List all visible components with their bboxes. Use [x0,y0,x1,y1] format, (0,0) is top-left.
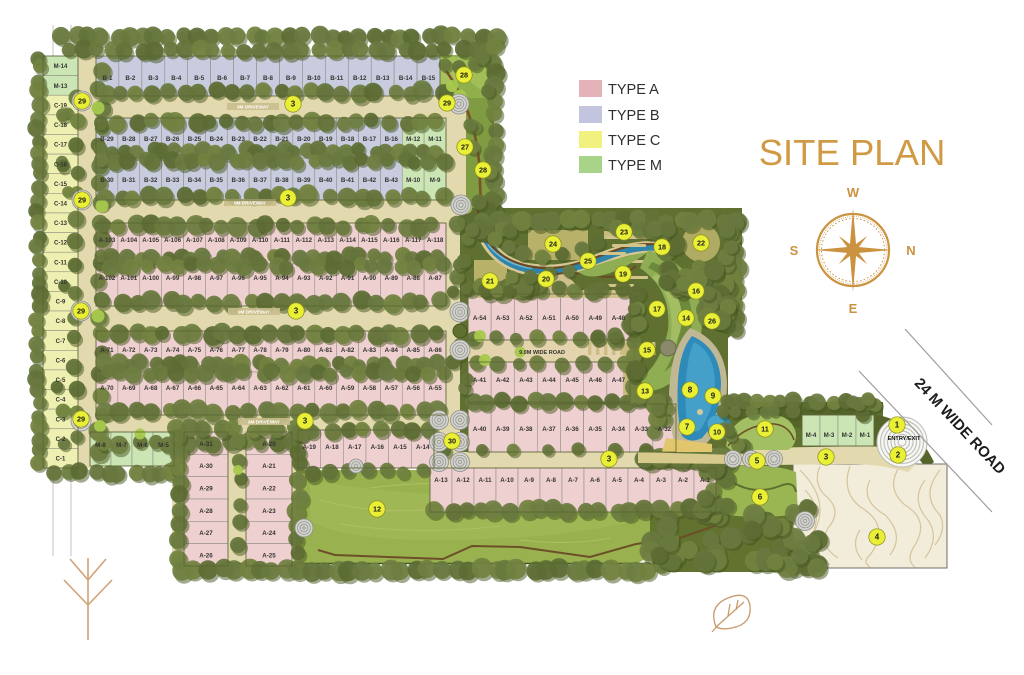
svg-text:A-60: A-60 [319,385,333,392]
svg-text:SITE PLAN: SITE PLAN [759,132,946,173]
svg-text:A-65: A-65 [210,385,224,392]
svg-text:A-52: A-52 [519,315,533,322]
svg-text:B-28: B-28 [122,136,136,143]
svg-text:A-89: A-89 [385,275,399,282]
svg-text:B-41: B-41 [341,177,355,184]
svg-text:A-33: A-33 [635,426,649,433]
svg-text:C-10: C-10 [54,280,68,286]
svg-text:A-47: A-47 [612,377,626,384]
svg-text:A-30: A-30 [199,463,213,470]
svg-text:9: 9 [711,392,716,401]
svg-text:A-118: A-118 [427,237,444,244]
svg-text:M-11: M-11 [428,136,442,143]
svg-text:A-35: A-35 [588,426,602,433]
svg-text:A-102: A-102 [98,275,115,282]
svg-text:A-43: A-43 [519,377,533,384]
svg-text:A-79: A-79 [275,347,289,354]
svg-text:C-1: C-1 [56,457,66,463]
svg-text:B-37: B-37 [253,177,267,184]
svg-text:B-5: B-5 [194,75,205,82]
svg-text:A-68: A-68 [144,385,158,392]
svg-text:A-74: A-74 [166,347,180,354]
svg-text:26: 26 [708,317,716,326]
svg-text:C-8: C-8 [56,319,66,325]
svg-text:A-24: A-24 [262,530,276,537]
svg-text:A-99: A-99 [166,275,180,282]
svg-text:B-26: B-26 [166,136,180,143]
svg-text:21: 21 [486,277,494,286]
svg-text:A-109: A-109 [230,237,247,244]
svg-text:C-12: C-12 [54,241,68,247]
svg-text:2: 2 [896,451,901,460]
svg-text:10: 10 [713,428,721,437]
svg-text:29: 29 [77,307,85,316]
svg-text:A-105: A-105 [142,237,159,244]
svg-text:M-10: M-10 [406,177,421,184]
svg-text:C-4: C-4 [56,398,66,404]
svg-text:B-40: B-40 [319,177,333,184]
svg-text:B-34: B-34 [188,177,202,184]
svg-text:A-110: A-110 [252,237,269,244]
svg-text:C-16: C-16 [54,162,68,168]
svg-text:5: 5 [755,457,760,466]
svg-text:A-50: A-50 [565,315,579,322]
svg-text:A-63: A-63 [253,385,267,392]
svg-text:A-54: A-54 [473,315,487,322]
svg-text:S: S [790,243,799,258]
svg-text:B-13: B-13 [376,75,390,82]
svg-text:3: 3 [291,100,296,109]
svg-text:A-46: A-46 [589,377,603,384]
svg-text:C-7: C-7 [56,339,66,345]
svg-text:30: 30 [448,437,456,446]
svg-text:18: 18 [658,243,666,252]
svg-text:C-19: C-19 [54,103,68,109]
svg-text:A-48: A-48 [612,315,626,322]
svg-text:7: 7 [685,423,690,432]
svg-text:A-17: A-17 [348,444,362,451]
svg-text:A-25: A-25 [262,553,276,560]
svg-text:A-71: A-71 [100,347,114,354]
svg-text:B-10: B-10 [307,75,321,82]
svg-text:A-78: A-78 [253,347,267,354]
svg-text:A-45: A-45 [565,377,579,384]
svg-text:B-19: B-19 [319,136,333,143]
svg-text:A-40: A-40 [473,426,487,433]
svg-text:TYPE M: TYPE M [608,158,662,174]
svg-text:A-37: A-37 [542,426,556,433]
svg-text:M-7: M-7 [116,442,127,449]
svg-text:27: 27 [461,143,469,152]
svg-text:A-84: A-84 [385,347,399,354]
svg-text:B-29: B-29 [100,136,114,143]
svg-text:A-111: A-111 [274,237,291,244]
svg-text:A-6: A-6 [590,477,601,484]
svg-text:ENTRY/EXIT: ENTRY/EXIT [888,436,921,442]
svg-text:B-33: B-33 [166,177,180,184]
svg-text:A-90: A-90 [363,275,377,282]
svg-text:B-1: B-1 [103,75,114,82]
svg-text:22: 22 [697,239,705,248]
svg-text:A-38: A-38 [519,426,533,433]
svg-text:B-11: B-11 [330,75,344,82]
svg-text:A-85: A-85 [406,347,420,354]
svg-text:A-56: A-56 [406,385,420,392]
svg-text:M-9: M-9 [430,177,441,184]
svg-text:B-43: B-43 [385,177,399,184]
svg-text:A-62: A-62 [275,385,289,392]
svg-text:B-22: B-22 [253,136,267,143]
svg-text:A-42: A-42 [496,377,510,384]
svg-text:12: 12 [373,505,381,514]
svg-text:A-13: A-13 [434,477,448,484]
svg-text:A-28: A-28 [199,508,213,515]
svg-text:B-30: B-30 [100,177,114,184]
svg-text:M-12: M-12 [406,136,421,143]
svg-text:A-15: A-15 [393,444,407,451]
svg-text:A-44: A-44 [542,377,556,384]
svg-text:TYPE A: TYPE A [608,82,659,98]
svg-text:A-18: A-18 [325,444,339,451]
svg-text:B-35: B-35 [210,177,224,184]
svg-text:A-92: A-92 [319,275,333,282]
svg-text:A-4: A-4 [634,477,645,484]
svg-text:M-14: M-14 [54,64,68,70]
svg-text:A-77: A-77 [231,347,245,354]
svg-text:M-6: M-6 [137,442,148,449]
svg-text:A-16: A-16 [371,444,385,451]
svg-text:A-57: A-57 [385,385,399,392]
svg-text:20: 20 [542,275,550,284]
svg-text:M-5: M-5 [158,442,169,449]
svg-text:A-116: A-116 [383,237,400,244]
svg-text:A-86: A-86 [428,347,442,354]
svg-text:C-14: C-14 [54,202,68,208]
svg-text:A-29: A-29 [199,486,213,493]
svg-text:B-39: B-39 [297,177,311,184]
svg-text:A-76: A-76 [210,347,224,354]
svg-text:B-36: B-36 [231,177,245,184]
svg-text:A-117: A-117 [405,237,422,244]
svg-text:C-11: C-11 [54,260,67,266]
svg-text:A-93: A-93 [297,275,311,282]
svg-text:A-80: A-80 [297,347,311,354]
svg-text:11: 11 [761,425,769,434]
svg-text:A-82: A-82 [341,347,355,354]
svg-text:29: 29 [78,97,86,106]
svg-text:C-5: C-5 [56,378,66,384]
svg-text:A-83: A-83 [363,347,377,354]
svg-text:B-15: B-15 [422,75,436,82]
svg-text:A-2: A-2 [678,477,689,484]
svg-text:B-7: B-7 [240,75,251,82]
svg-text:A-9: A-9 [524,477,535,484]
svg-text:3: 3 [607,455,612,464]
svg-text:28: 28 [479,166,487,175]
svg-text:A-108: A-108 [208,237,225,244]
svg-text:9M DRIVEWAY: 9M DRIVEWAY [238,310,270,315]
svg-text:C-6: C-6 [56,358,66,364]
svg-text:A-88: A-88 [406,275,420,282]
svg-text:6: 6 [758,493,763,502]
svg-text:A-3: A-3 [656,477,667,484]
svg-text:A-1: A-1 [700,477,711,484]
svg-text:A-5: A-5 [612,477,623,484]
svg-text:B-27: B-27 [144,136,158,143]
svg-text:M-3: M-3 [824,432,835,439]
svg-text:3: 3 [294,307,299,316]
svg-text:A-100: A-100 [142,275,159,282]
svg-text:C-9: C-9 [56,300,66,306]
svg-text:C-17: C-17 [54,143,68,149]
svg-text:A-101: A-101 [120,275,137,282]
svg-text:A-66: A-66 [188,385,202,392]
svg-text:B-20: B-20 [297,136,311,143]
svg-text:29: 29 [443,99,451,108]
svg-text:A-103: A-103 [98,237,115,244]
svg-text:3: 3 [286,194,291,203]
svg-text:B-14: B-14 [399,75,413,82]
svg-text:A-21: A-21 [262,463,276,470]
svg-text:9.0M WIDE ROAD: 9.0M WIDE ROAD [519,350,565,356]
svg-text:A-104: A-104 [120,237,137,244]
svg-text:A-12: A-12 [456,477,470,484]
svg-text:14: 14 [682,314,691,323]
svg-text:B-2: B-2 [125,75,136,82]
svg-text:B-24: B-24 [210,136,224,143]
svg-text:A-97: A-97 [210,275,224,282]
svg-text:TYPE C: TYPE C [608,133,660,149]
svg-text:A-73: A-73 [144,347,158,354]
svg-text:B-17: B-17 [363,136,377,143]
svg-text:A-19: A-19 [303,444,317,451]
svg-text:B-21: B-21 [275,136,289,143]
svg-text:TYPE B: TYPE B [608,108,660,124]
svg-text:M-1: M-1 [860,432,871,439]
svg-text:A-91: A-91 [341,275,355,282]
svg-text:B-6: B-6 [217,75,228,82]
svg-text:29: 29 [78,196,86,205]
svg-text:A-53: A-53 [496,315,510,322]
svg-text:B-8: B-8 [263,75,274,82]
svg-text:A-51: A-51 [542,315,556,322]
svg-text:24: 24 [549,240,558,249]
svg-text:A-64: A-64 [231,385,245,392]
svg-text:M-2: M-2 [842,432,853,439]
svg-text:9M DRIVEWAY: 9M DRIVEWAY [234,201,266,206]
svg-text:B-12: B-12 [353,75,367,82]
svg-text:A-39: A-39 [496,426,510,433]
svg-text:A-58: A-58 [363,385,377,392]
svg-text:A-112: A-112 [296,237,313,244]
svg-text:28: 28 [460,71,468,80]
svg-text:A-107: A-107 [186,237,203,244]
svg-text:A-113: A-113 [317,237,334,244]
svg-text:A-8: A-8 [546,477,557,484]
svg-text:A-81: A-81 [319,347,333,354]
svg-text:A-106: A-106 [164,237,181,244]
svg-text:A-61: A-61 [297,385,311,392]
svg-text:A-23: A-23 [262,508,276,515]
svg-text:9M DRIVEWAY: 9M DRIVEWAY [248,420,280,425]
svg-text:19: 19 [619,270,627,279]
svg-text:M-8: M-8 [95,442,106,449]
svg-text:C-2: C-2 [56,437,66,443]
svg-text:A-20: A-20 [262,441,276,448]
svg-text:B-18: B-18 [341,136,355,143]
svg-text:C-18: C-18 [54,123,68,129]
svg-text:C-3: C-3 [56,417,66,423]
svg-text:3: 3 [303,417,308,426]
svg-text:A-41: A-41 [473,377,487,384]
svg-text:25: 25 [584,257,592,266]
svg-text:A-72: A-72 [122,347,136,354]
svg-text:B-16: B-16 [385,136,399,143]
svg-text:29: 29 [77,415,85,424]
svg-text:9M DRIVEWAY: 9M DRIVEWAY [237,105,269,110]
svg-text:B-9: B-9 [286,75,297,82]
svg-text:A-27: A-27 [199,530,213,537]
svg-text:B-42: B-42 [363,177,377,184]
svg-text:A-67: A-67 [166,385,180,392]
svg-text:1: 1 [895,421,900,430]
svg-text:8: 8 [688,386,693,395]
svg-text:M-13: M-13 [54,84,68,90]
svg-text:13: 13 [641,387,649,396]
svg-text:3: 3 [824,453,829,462]
svg-text:A-32: A-32 [658,426,672,433]
svg-text:A-75: A-75 [188,347,202,354]
svg-text:M-4: M-4 [806,432,817,439]
svg-text:17: 17 [653,305,661,314]
svg-text:A-26: A-26 [199,553,213,560]
svg-text:A-69: A-69 [122,385,136,392]
svg-text:A-11: A-11 [478,477,492,484]
svg-text:A-70: A-70 [100,385,114,392]
svg-text:15: 15 [643,346,651,355]
svg-text:B-3: B-3 [148,75,159,82]
svg-text:A-55: A-55 [428,385,442,392]
svg-text:16: 16 [692,287,700,296]
svg-text:4: 4 [875,533,880,542]
svg-text:23: 23 [620,228,628,237]
svg-text:A-96: A-96 [231,275,245,282]
svg-text:A-7: A-7 [568,477,579,484]
svg-text:A-36: A-36 [565,426,579,433]
svg-text:A-10: A-10 [500,477,514,484]
svg-text:A-95: A-95 [253,275,267,282]
svg-text:N: N [906,243,915,258]
svg-text:W: W [847,185,860,200]
svg-text:C-15: C-15 [54,182,68,188]
svg-text:A-98: A-98 [188,275,202,282]
svg-text:C-13: C-13 [54,221,68,227]
svg-text:B-38: B-38 [275,177,289,184]
svg-text:B-32: B-32 [144,177,158,184]
svg-text:A-31: A-31 [199,441,213,448]
svg-text:A-114: A-114 [339,237,356,244]
svg-text:A-87: A-87 [428,275,442,282]
svg-text:A-59: A-59 [341,385,355,392]
svg-text:A-22: A-22 [262,486,276,493]
svg-text:E: E [849,301,858,316]
svg-text:B-4: B-4 [171,75,182,82]
svg-text:B-25: B-25 [188,136,202,143]
svg-text:A-14: A-14 [416,444,430,451]
svg-text:A-115: A-115 [361,237,378,244]
svg-text:B-31: B-31 [122,177,136,184]
svg-text:A-34: A-34 [611,426,625,433]
svg-text:B-23: B-23 [231,136,245,143]
svg-text:A-49: A-49 [589,315,603,322]
svg-text:A-94: A-94 [275,275,289,282]
